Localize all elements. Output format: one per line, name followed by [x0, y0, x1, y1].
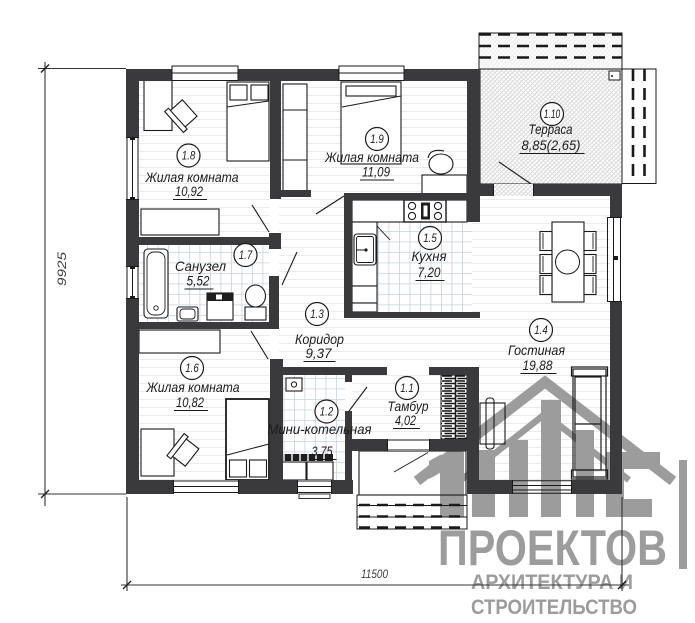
svg-text:Терраса: Терраса [529, 121, 573, 137]
svg-text:Жилая комната: Жилая комната [146, 379, 240, 395]
svg-text:4,02: 4,02 [395, 412, 416, 428]
svg-text:10,92: 10,92 [175, 183, 203, 199]
svg-text:СТРОИТЕЛЬСТВО: СТРОИТЕЛЬСТВО [471, 596, 637, 619]
svg-text:1.7: 1.7 [239, 250, 253, 262]
svg-text:Мини-котельная: Мини-котельная [268, 421, 372, 437]
svg-text:АРХИТЕКТУРА И: АРХИТЕКТУРА И [471, 571, 633, 594]
svg-text:8,85(2,65): 8,85(2,65) [522, 137, 581, 153]
svg-text:10,82: 10,82 [176, 394, 204, 410]
svg-text:1.5: 1.5 [423, 233, 437, 245]
svg-text:19,88: 19,88 [523, 357, 553, 373]
svg-text:Кухня: Кухня [412, 248, 447, 264]
svg-text:1.4: 1.4 [534, 325, 548, 337]
svg-text:1.1: 1.1 [400, 383, 414, 395]
svg-text:9,37: 9,37 [306, 345, 333, 361]
svg-text:7,20: 7,20 [418, 264, 441, 280]
svg-text:1.8: 1.8 [182, 151, 196, 163]
svg-text:Гостиная: Гостиная [508, 342, 565, 358]
svg-text:1.10: 1.10 [544, 109, 561, 121]
svg-text:3,75: 3,75 [312, 443, 333, 459]
svg-text:5,52: 5,52 [187, 273, 210, 289]
svg-text:9925: 9925 [57, 251, 69, 286]
svg-text:11500: 11500 [361, 569, 389, 581]
svg-text:11,09: 11,09 [362, 164, 390, 180]
svg-text:ПРОЕКТОВ: ПРОЕКТОВ [438, 520, 667, 576]
svg-text:1.9: 1.9 [370, 134, 384, 146]
svg-text:1.6: 1.6 [185, 363, 199, 375]
svg-text:1.3: 1.3 [310, 309, 324, 321]
svg-text:1.2: 1.2 [320, 407, 334, 419]
